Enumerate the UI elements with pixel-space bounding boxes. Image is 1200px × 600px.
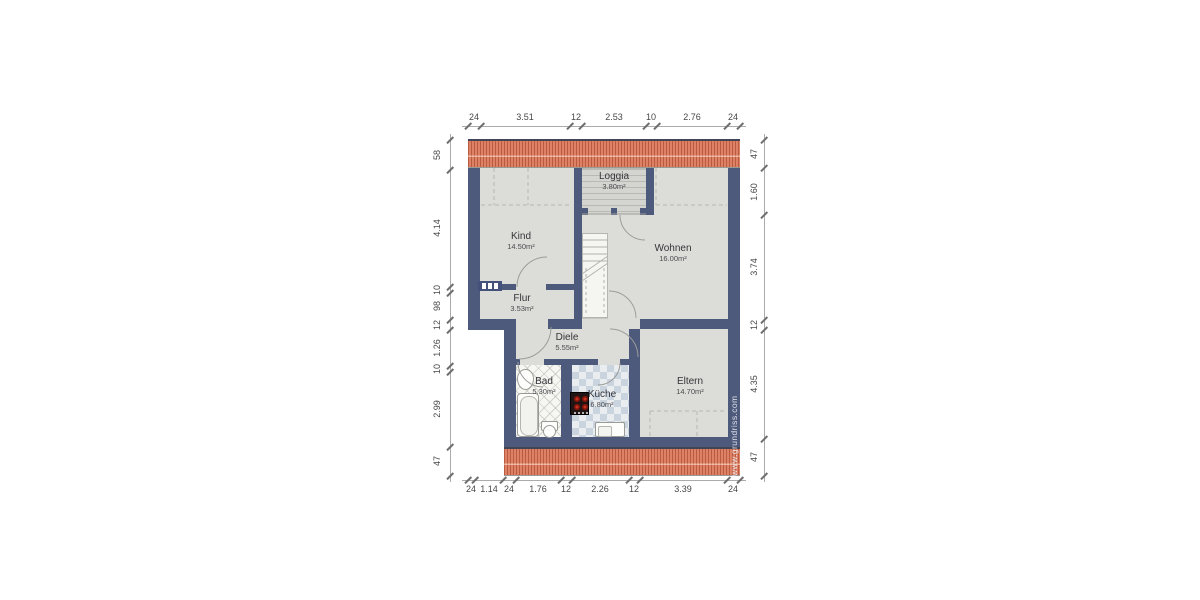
dim-label: 2.53 xyxy=(605,112,623,122)
dim-label: 10 xyxy=(432,364,442,374)
dim-label: 4.35 xyxy=(749,375,759,393)
dim-label: 12 xyxy=(749,320,759,330)
roof-slope-dashed-kind xyxy=(481,168,570,205)
dim-label: 47 xyxy=(432,456,442,466)
dim-label: 3.51 xyxy=(516,112,534,122)
roof-slope-dashed-wohnen xyxy=(656,168,727,205)
dim-label: 47 xyxy=(749,452,759,462)
watermark-text: www.grundriss.com xyxy=(729,382,740,476)
dim-label: 4.14 xyxy=(432,219,442,237)
dim-label: 2.76 xyxy=(683,112,701,122)
roof-slope-dashed-eltern xyxy=(650,411,727,436)
door-arc-loggia xyxy=(620,215,645,240)
dim-line-top xyxy=(462,126,746,127)
dim-label: 12 xyxy=(432,320,442,330)
door-arc-kind xyxy=(517,257,547,287)
dim-label: 10 xyxy=(432,285,442,295)
stair-treads xyxy=(582,240,608,261)
dim-label: 58 xyxy=(432,150,442,160)
dim-label: 12 xyxy=(629,484,639,494)
dim-label: 12 xyxy=(571,112,581,122)
dim-label: 12 xyxy=(561,484,571,494)
dim-label: 47 xyxy=(749,149,759,159)
dim-label: 3.39 xyxy=(674,484,692,494)
dim-line-right xyxy=(764,134,765,482)
door-arc-kueche xyxy=(598,363,620,385)
floorplan-canvas: Loggia 3.80m² Kind 14.50m² Wohnen 16.00m… xyxy=(0,0,1200,600)
dim-line-bottom xyxy=(462,480,746,481)
dim-label: 98 xyxy=(432,301,442,311)
dim-label: 24 xyxy=(728,484,738,494)
dim-label: 24 xyxy=(469,112,479,122)
dim-label: 1.76 xyxy=(529,484,547,494)
dim-label: 24 xyxy=(728,112,738,122)
dim-label: 10 xyxy=(646,112,656,122)
dim-label: 2.26 xyxy=(591,484,609,494)
door-arc-flur-diele xyxy=(519,327,551,359)
door-arc-eltern xyxy=(610,329,638,357)
dim-label: 24 xyxy=(466,484,476,494)
dim-label: 1.26 xyxy=(432,339,442,357)
dim-label: 1.14 xyxy=(480,484,498,494)
door-arc-wohnen xyxy=(609,291,636,318)
dim-label: 1.60 xyxy=(749,183,759,201)
dim-label: 3.74 xyxy=(749,258,759,276)
dim-label: 2.99 xyxy=(432,400,442,418)
dim-line-left xyxy=(450,134,451,482)
stair-stringers xyxy=(586,268,604,314)
dim-label: 24 xyxy=(504,484,514,494)
door-arc-bad xyxy=(518,362,543,387)
plan-annotations xyxy=(0,0,1200,600)
